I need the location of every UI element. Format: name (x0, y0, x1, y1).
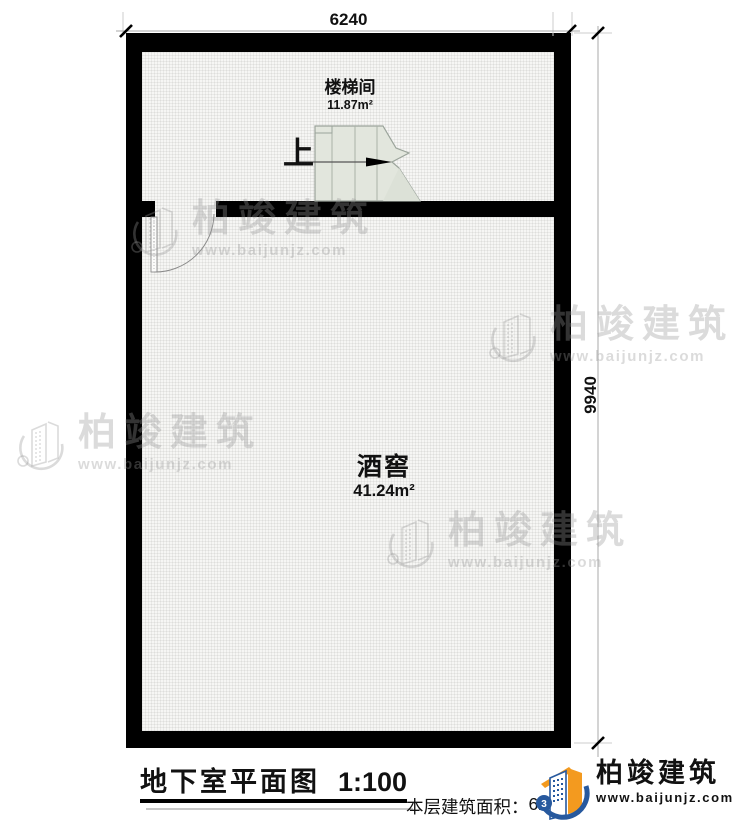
wine-cellar-name: 酒窖 (324, 453, 444, 482)
drawing-title-row: 地下室平面图 1:100 (140, 760, 407, 799)
watermark-website: www.baijunjz.com (550, 348, 734, 365)
watermark-company: 柏竣建筑 (78, 414, 262, 452)
floor-plan-page: 6240 9940 楼梯间 11.87m² 上 酒窖 41.24m² 柏竣建筑 … (0, 0, 750, 832)
drawing-scale: 1:100 (338, 767, 407, 798)
watermark-logo-icon (14, 414, 68, 480)
stairwell-area: 11.87m² (290, 98, 410, 112)
watermark: 柏竣建筑 www.baijunjz.com (486, 306, 734, 372)
room-label-wine-cellar: 酒窖 41.24m² (324, 453, 444, 501)
watermark-website: www.baijunjz.com (78, 456, 262, 473)
watermark-logo-icon (128, 200, 182, 266)
watermark: 柏竣建筑 www.baijunjz.com (14, 414, 262, 480)
dimension-right-value: 9940 (581, 364, 601, 426)
wall-right (554, 33, 571, 748)
wall-bottom (126, 731, 571, 748)
title-underline-shadow (146, 808, 413, 810)
floor-area-total: 本层建筑面积： 62. (406, 794, 553, 819)
title-underline (140, 799, 407, 803)
company-logo-icon: 3 (533, 758, 591, 828)
floor-area-label: 本层建筑面积： (406, 794, 529, 819)
watermark-website: www.baijunjz.com (448, 554, 632, 571)
room-label-stairwell: 楼梯间 11.87m² (290, 78, 410, 112)
company-logo: 3 柏竣建筑 www.baijunjz.com (533, 758, 734, 828)
wall-left (126, 33, 142, 748)
watermark: 柏竣建筑 www.baijunjz.com (128, 200, 376, 266)
watermark-logo-icon (486, 306, 540, 372)
logo-company-name: 柏竣建筑 (596, 758, 734, 789)
watermark-company: 柏竣建筑 (448, 512, 632, 550)
logo-badge-glyph: 3 (541, 799, 547, 810)
watermark-company: 柏竣建筑 (550, 306, 734, 344)
watermark-logo-icon (384, 512, 438, 578)
wall-top (126, 33, 571, 52)
floor-texture (142, 52, 554, 731)
drawing-title: 地下室平面图 (140, 760, 320, 799)
watermark: 柏竣建筑 www.baijunjz.com (384, 512, 632, 578)
wine-cellar-area: 41.24m² (324, 482, 444, 501)
stair-up-label: 上 (283, 138, 314, 169)
watermark-company: 柏竣建筑 (192, 200, 376, 238)
dimension-top-value: 6240 (126, 10, 571, 30)
watermark-website: www.baijunjz.com (192, 242, 376, 259)
stairwell-name: 楼梯间 (290, 78, 410, 98)
logo-website: www.baijunjz.com (596, 790, 734, 805)
